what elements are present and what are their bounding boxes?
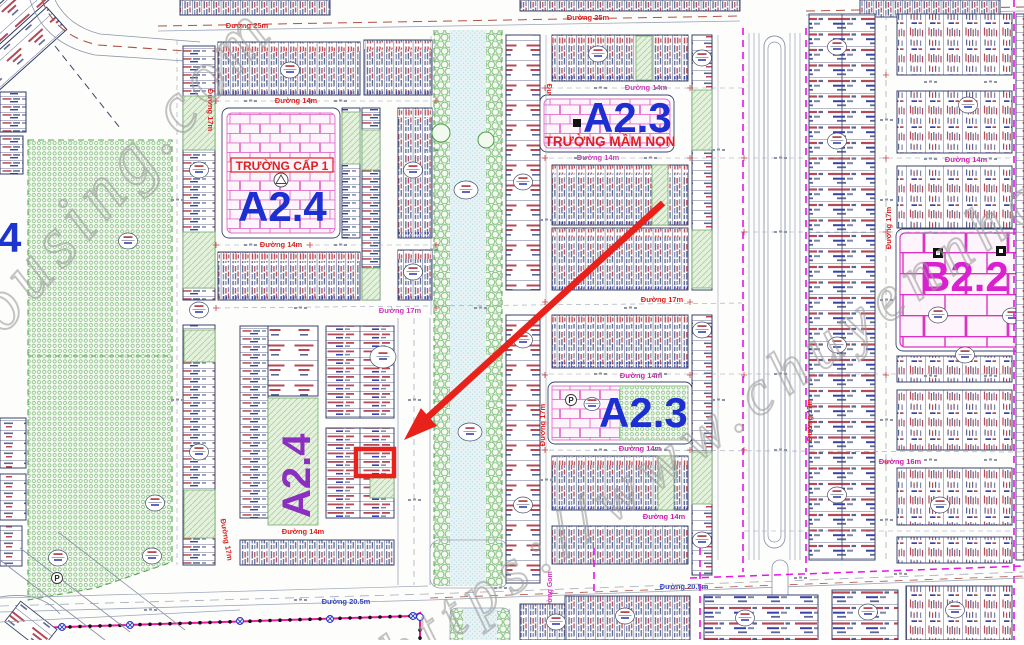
svg-text:Đường 14m: Đường 14m (282, 527, 325, 536)
svg-text:P: P (568, 396, 574, 405)
svg-text:Đường 17m: Đường 17m (641, 295, 684, 304)
svg-text:Đường 17m: Đường 17m (379, 306, 422, 315)
svg-text:Đường 16m: Đường 16m (879, 457, 922, 466)
svg-text:Đường 20.5m: Đường 20.5m (322, 597, 371, 606)
svg-text:Đường 17m: Đường 17m (884, 206, 893, 249)
svg-text:Đường 17m: Đường 17m (805, 398, 814, 441)
svg-text:A2.4: A2.4 (238, 183, 327, 230)
svg-text:Đường 14m: Đường 14m (260, 240, 303, 249)
svg-text:Đường 14m: Đường 14m (620, 371, 663, 380)
svg-text:TRƯỜNG CẤP 1: TRƯỜNG CẤP 1 (236, 158, 329, 173)
svg-text:A2.4: A2.4 (275, 433, 319, 518)
svg-text:P: P (54, 574, 60, 583)
svg-text:Đường 25m: Đường 25m (567, 13, 610, 22)
svg-text:Đường 14m: Đường 14m (577, 153, 620, 162)
svg-text:Đường 14m: Đường 14m (275, 96, 318, 105)
svg-text:Đường 17m: Đường 17m (538, 403, 547, 446)
svg-text:Đường 14m: Đường 14m (945, 155, 988, 164)
svg-text:TRƯỜNG MẦM NON: TRƯỜNG MẦM NON (545, 134, 676, 149)
